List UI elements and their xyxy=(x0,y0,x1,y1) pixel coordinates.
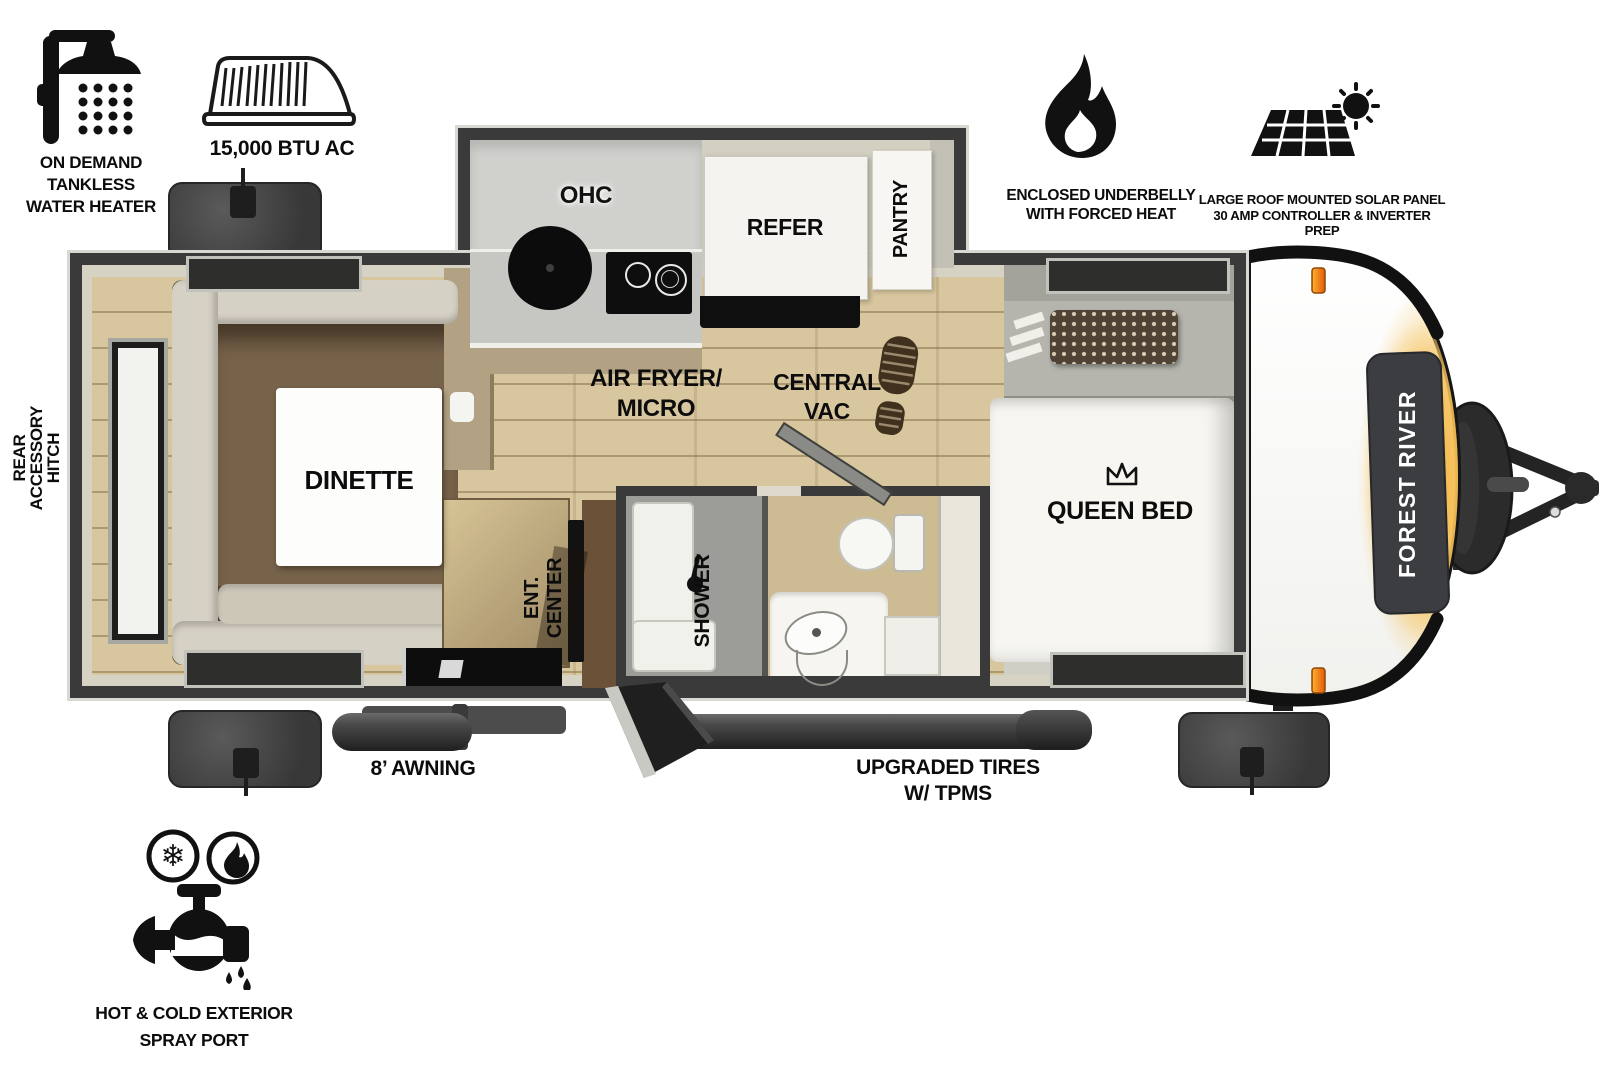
solar-label: LARGE ROOF MOUNTED SOLAR PANEL 30 AMP CO… xyxy=(1198,192,1446,239)
bathroom-door-opening xyxy=(757,486,801,496)
awning-end-cap xyxy=(1016,710,1092,750)
crown-icon xyxy=(1102,460,1142,490)
front-cap-logo: FOREST RIVER xyxy=(1394,361,1422,607)
dinette-label: DINETTE xyxy=(276,465,442,496)
dinette-seat-cushion xyxy=(218,584,456,624)
rear-hitch-label: REAR ACCESSORY HITCH xyxy=(11,377,79,539)
stabilizer-pin xyxy=(1250,777,1254,795)
shower-label: SHOWER xyxy=(690,536,716,666)
burner xyxy=(625,262,651,288)
bathroom-step xyxy=(884,616,940,676)
stabilizer-pin xyxy=(241,168,245,188)
queen-mattress xyxy=(990,398,1234,662)
rooftop-ac-icon xyxy=(200,52,358,132)
bathroom-closet xyxy=(938,496,980,676)
spray-port-label: HOT & COLD EXTERIOR SPRAY PORT xyxy=(70,1000,318,1054)
stabilizer-knob xyxy=(230,186,256,218)
awning-label: 8’ AWNING xyxy=(343,757,503,781)
tires-label: UPGRADED TIRES W/ TPMS xyxy=(828,755,1068,807)
pantry-side-wall xyxy=(930,140,954,268)
sink-drain xyxy=(546,264,554,272)
entry-step xyxy=(598,680,720,782)
window-bottom-dinette xyxy=(184,650,364,688)
ent-center-label: ENT. CENTER xyxy=(521,523,569,673)
sink-faucet xyxy=(812,628,821,637)
air-fryer-micro-label: AIR FRYER/ MICRO xyxy=(556,364,756,424)
ohc-label: OHC xyxy=(500,182,672,210)
solar-panel-sun-icon xyxy=(1243,80,1383,162)
stabilizer-knob xyxy=(1240,747,1264,777)
stabilizer-pin xyxy=(244,778,248,796)
queen-bed-label: QUEEN BED xyxy=(1020,497,1220,526)
shower-head-icon xyxy=(35,22,145,144)
svg-text:❄: ❄ xyxy=(160,839,185,874)
rear-wall-window xyxy=(112,342,164,640)
refer-base xyxy=(700,296,860,328)
window-top-dinette xyxy=(186,256,362,292)
entry-door-notch xyxy=(438,660,463,678)
burner-ring xyxy=(661,270,679,288)
flame-icon xyxy=(1032,52,1128,160)
shower-glass xyxy=(762,496,768,676)
window-bottom-bedroom xyxy=(1050,652,1246,688)
central-vac-label: CENTRAL VAC xyxy=(757,368,897,426)
water-heater-label: ON DEMAND TANKLESS WATER HEATER xyxy=(5,152,177,218)
stabilizer-knob xyxy=(233,748,259,778)
toilet-bowl xyxy=(838,517,894,571)
floorplan-stage: ON DEMAND TANKLESS WATER HEATER 15,000 B… xyxy=(0,0,1600,1068)
refer-label: REFER xyxy=(704,214,866,241)
toilet-tank xyxy=(893,514,925,572)
faucet-hot-cold-icon: ❄ xyxy=(125,828,270,990)
dinette-bench-left xyxy=(172,280,218,665)
counter-item xyxy=(450,392,474,422)
ac-label: 15,000 BTU AC xyxy=(182,137,382,161)
bed-pillow xyxy=(1050,310,1178,364)
underbelly-label: ENCLOSED UNDERBELLY WITH FORCED HEAT xyxy=(992,186,1210,224)
window-top-bedroom xyxy=(1046,258,1230,294)
awning-roller-left xyxy=(332,713,472,751)
pantry-label: PANTRY xyxy=(889,159,913,279)
